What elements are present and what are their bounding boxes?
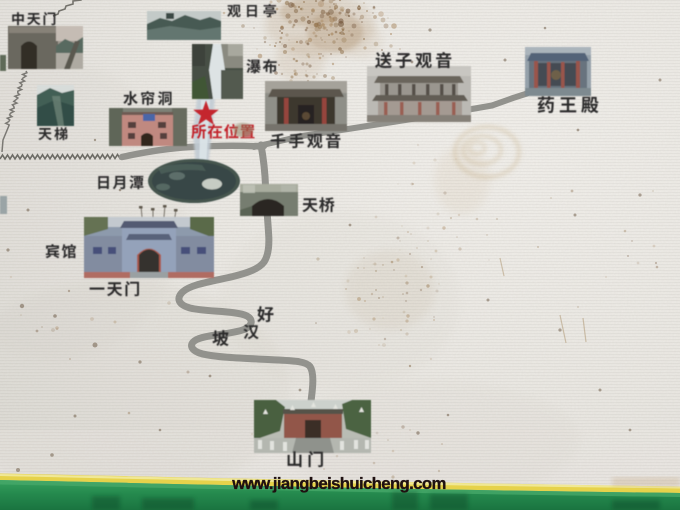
svg-text:www.jiangbeishuicheng.com: www.jiangbeishuicheng.com xyxy=(231,474,445,493)
